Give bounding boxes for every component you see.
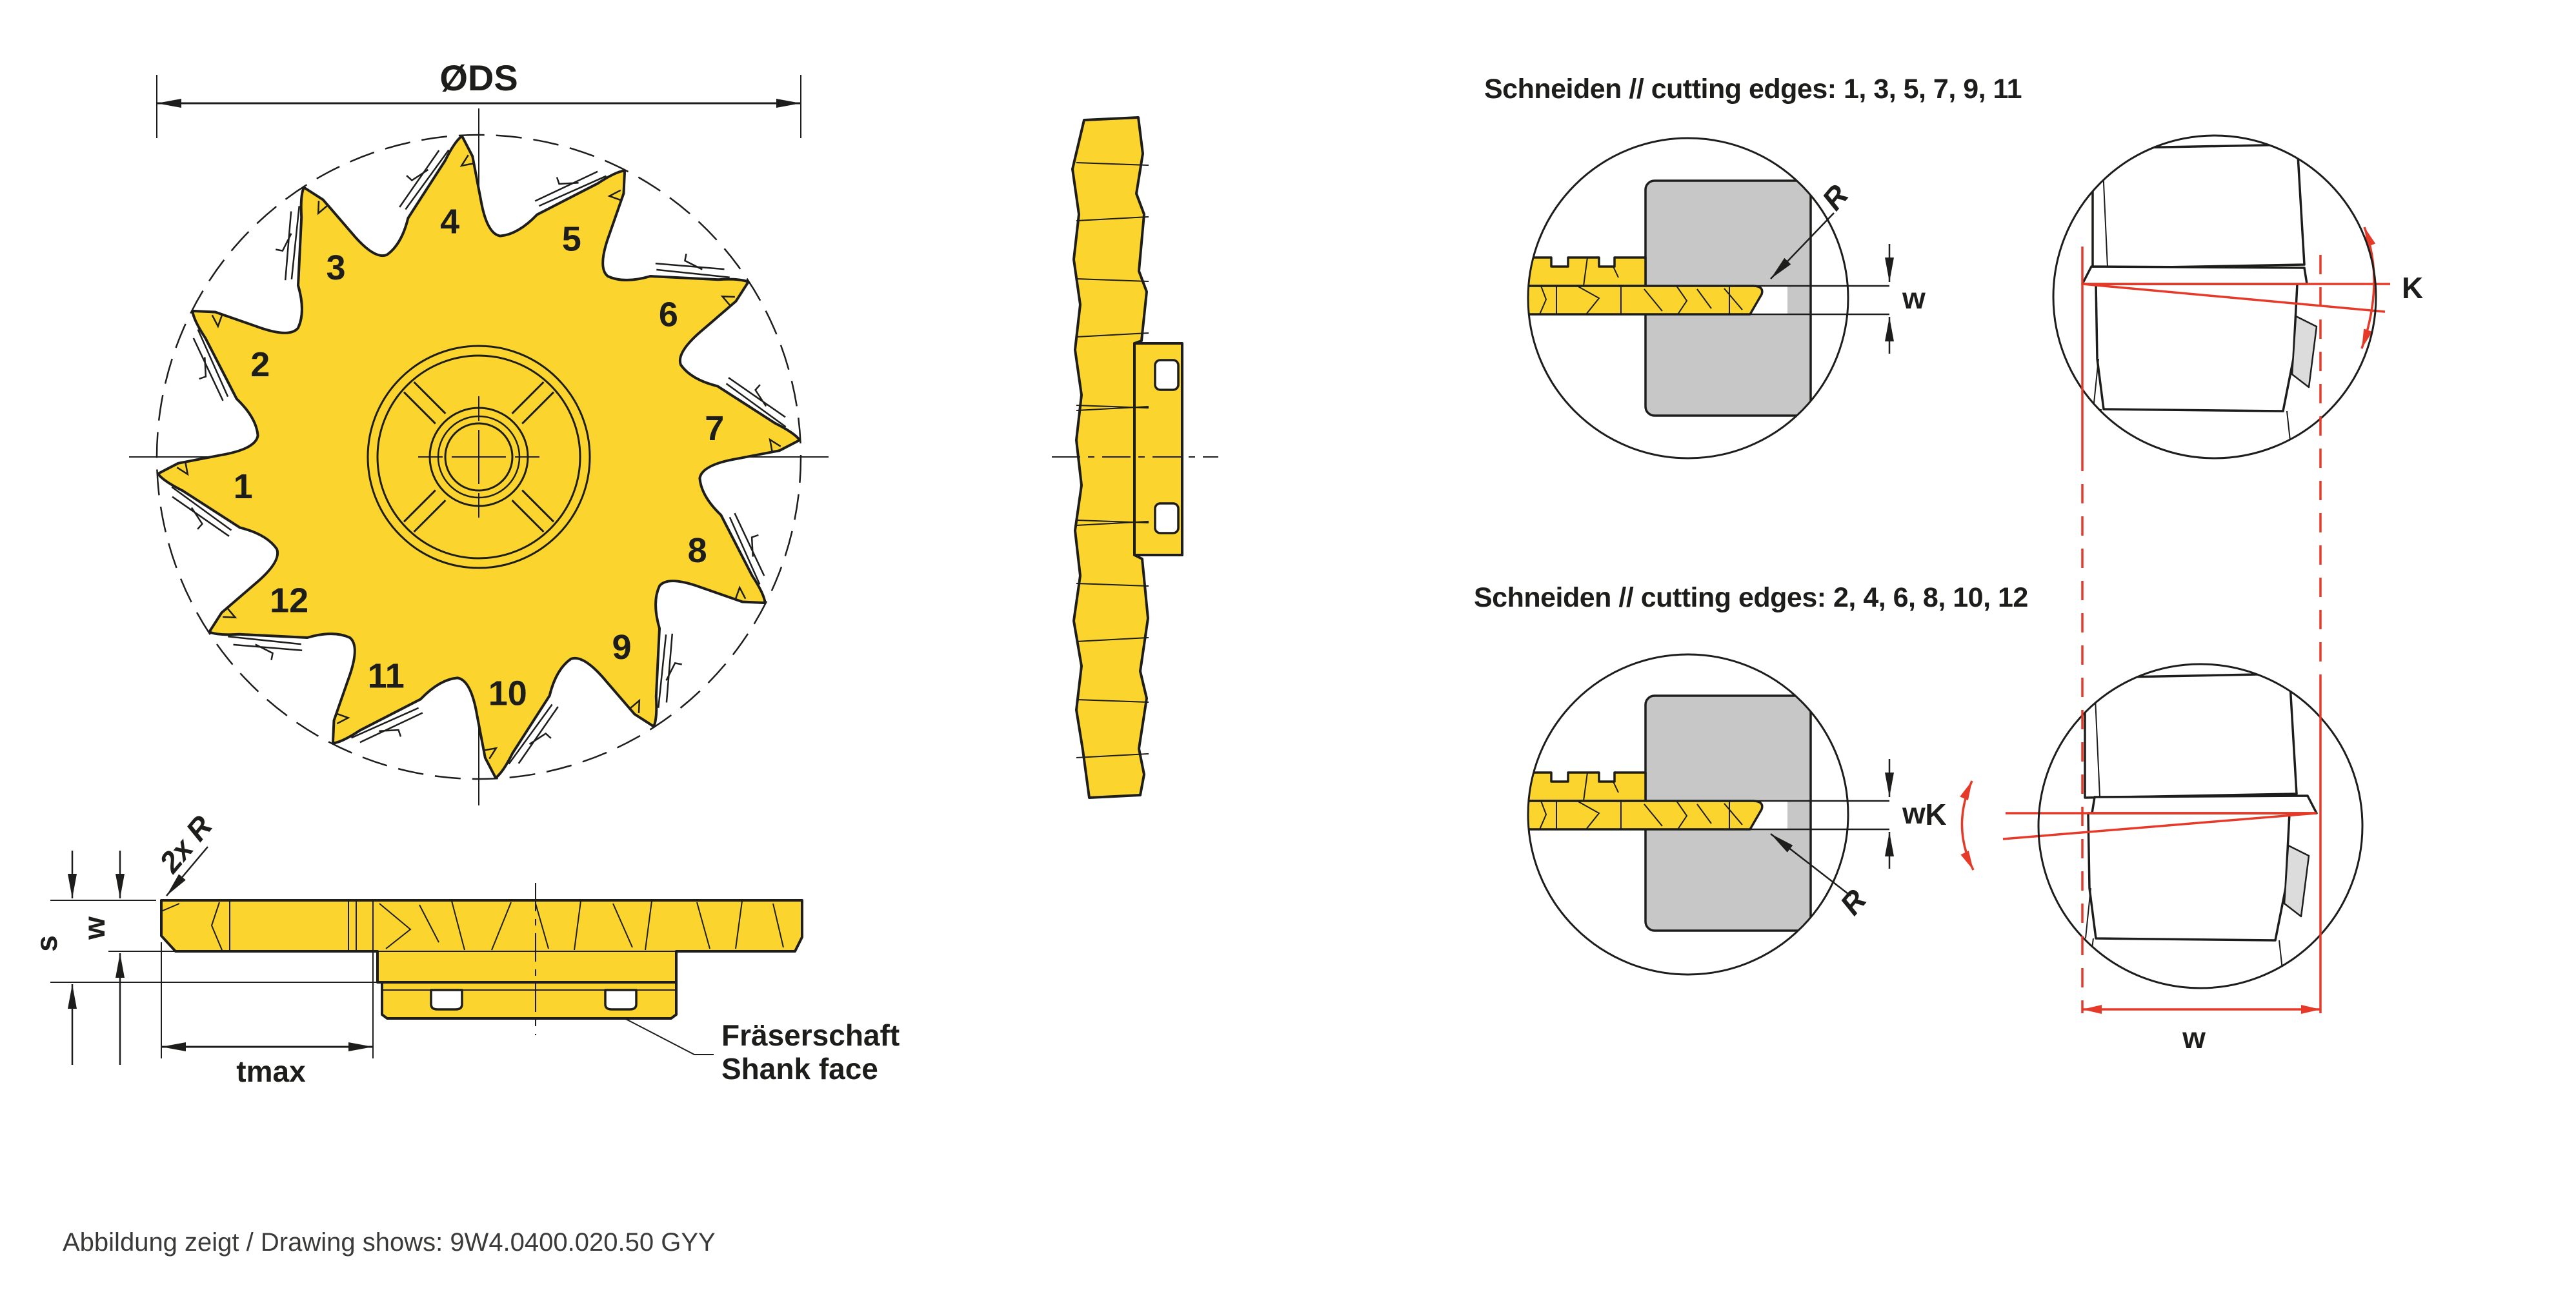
angle-arc-even	[1962, 781, 1973, 870]
detail-view-odd-angle: K	[2053, 136, 2423, 460]
shank-label-de: Fräserschaft	[721, 1018, 900, 1052]
groove-content-even	[1527, 696, 1811, 931]
tooth-number-2: 2	[250, 345, 270, 384]
tooth-number-4: 4	[440, 203, 459, 241]
diameter-label: ØDS	[439, 57, 518, 98]
w-label-section: w	[77, 916, 111, 940]
detail-view-odd-groove: R w	[1527, 138, 1926, 458]
side-profile-view	[1052, 117, 1218, 798]
tooth-number-8: 8	[688, 531, 707, 570]
tooth-number-6: 6	[659, 296, 678, 334]
section-strip	[161, 900, 802, 982]
tooth-content-even	[2085, 674, 2309, 989]
detail-view-even-angle: K	[1925, 664, 2362, 989]
shank-label-en: Shank face	[721, 1052, 878, 1086]
title-edges-even: Schneiden // cutting edges: 2, 4, 6, 8, …	[1474, 582, 2028, 613]
tooth-number-7: 7	[705, 409, 724, 448]
front-view: 123456789101112	[129, 108, 829, 805]
tooth-number-11: 11	[368, 657, 405, 696]
radius-label-even: R	[1833, 883, 1873, 921]
hub-slot-upper	[1155, 360, 1178, 390]
groove-content-odd	[1527, 181, 1811, 416]
hub-slot-lower	[1155, 503, 1178, 533]
w-label-even: w	[1902, 796, 1926, 830]
tooth-number-1: 1	[234, 467, 253, 506]
shank-face-leader	[625, 1018, 714, 1055]
s-label: s	[30, 935, 63, 952]
shank-slot-left	[431, 990, 462, 1009]
tooth-number-10: 10	[488, 674, 527, 713]
total-width-label: w	[2182, 1021, 2206, 1055]
angle-label-odd: K	[2402, 271, 2423, 305]
shank-slot-right	[605, 990, 636, 1009]
corner-radius-note: 2x R	[152, 809, 219, 880]
detail-view-even-groove: R w	[1527, 654, 1926, 975]
side-section-view: s w 2x R tmax Fräserschaft Shank face	[30, 809, 900, 1088]
tooth-number-3: 3	[326, 248, 345, 287]
tmax-label: tmax	[236, 1055, 306, 1088]
cutting-edge-land-odd	[2082, 267, 2307, 284]
tooth-number-5: 5	[562, 219, 581, 258]
w-label-odd: w	[1902, 281, 1926, 315]
title-edges-odd: Schneiden // cutting edges: 1, 3, 5, 7, …	[1484, 74, 2022, 105]
drawing-caption: Abbildung zeigt / Drawing shows: 9W4.040…	[63, 1228, 716, 1257]
cutting-edge-land-even	[2092, 796, 2317, 813]
technical-drawing-canvas: 123456789101112 ØDS s w	[0, 0, 2576, 1294]
tooth-number-9: 9	[612, 628, 631, 667]
tooth-number-12: 12	[270, 581, 308, 620]
angle-label-even: K	[1925, 798, 1946, 831]
